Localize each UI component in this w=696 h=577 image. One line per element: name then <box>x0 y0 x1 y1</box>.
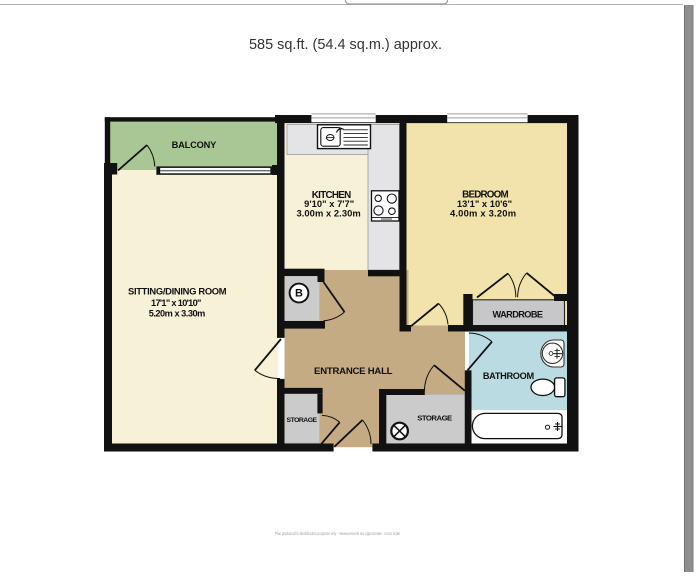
svg-text:BALCONY: BALCONY <box>172 140 217 150</box>
svg-text:STORAGE: STORAGE <box>287 417 318 424</box>
svg-text:ENTRANCE HALL: ENTRANCE HALL <box>314 366 393 377</box>
svg-text:B: B <box>295 287 303 299</box>
svg-text:585 sq.ft. (54.4 sq.m.) approx: 585 sq.ft. (54.4 sq.m.) approx. <box>249 36 442 53</box>
svg-text:3.00m x 2.30m: 3.00m x 2.30m <box>297 207 361 218</box>
svg-text:SITTING/DINING ROOM: SITTING/DINING ROOM <box>128 286 227 297</box>
svg-text:WARDROBE: WARDROBE <box>493 309 544 319</box>
svg-text:Plan produced for identificati: Plan produced for identification purpose… <box>275 531 400 536</box>
svg-text:BATHROOM: BATHROOM <box>483 371 535 381</box>
svg-text:5.20m x 3.30m: 5.20m x 3.30m <box>149 309 206 319</box>
svg-text:4.00m x 3.20m: 4.00m x 3.20m <box>450 208 516 219</box>
svg-text:17'1" x 10'10": 17'1" x 10'10" <box>151 298 201 308</box>
svg-text:STORAGE: STORAGE <box>417 414 452 423</box>
